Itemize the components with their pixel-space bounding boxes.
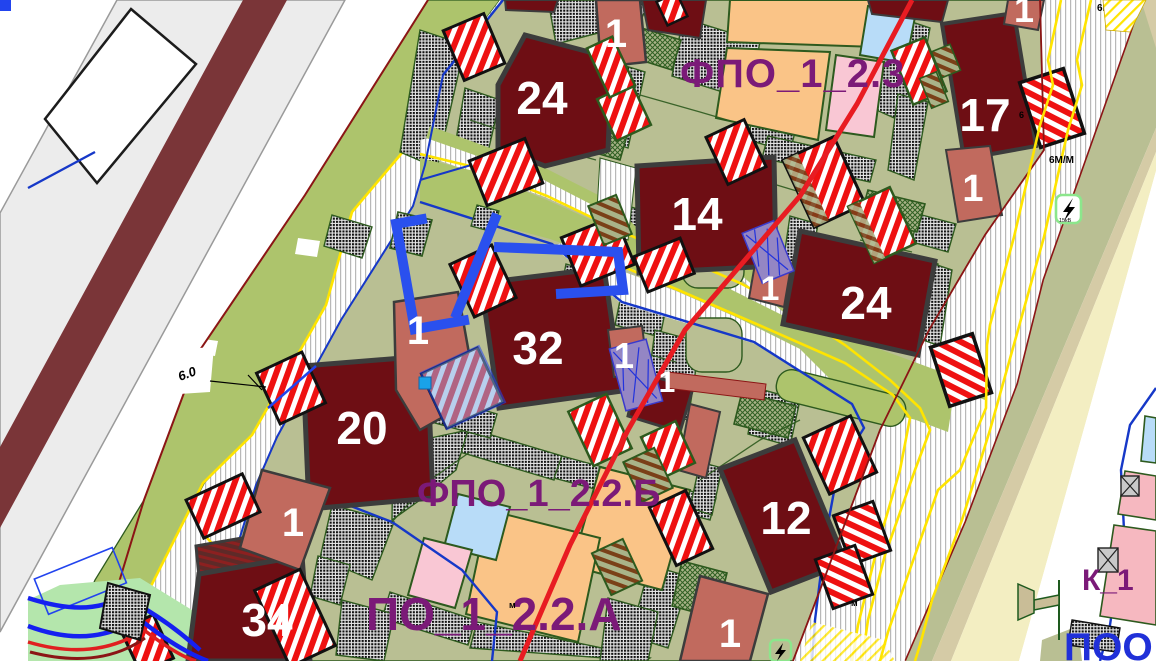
svg-text:ФПО_1_2.2.Б: ФПО_1_2.2.Б [417,473,660,515]
svg-text:1: 1 [1014,0,1034,30]
svg-text:12: 12 [760,492,811,544]
svg-text:15кВ: 15кВ [1059,218,1072,224]
svg-text:м: м [851,598,858,608]
svg-text:34: 34 [241,594,293,646]
svg-text:К_1: К_1 [1082,564,1134,597]
svg-text:14: 14 [671,188,723,240]
svg-text:1: 1 [719,612,741,656]
svg-text:6М/М: 6М/М [1049,155,1074,166]
svg-text:20: 20 [336,402,387,454]
svg-text:1: 1 [761,270,780,308]
svg-text:ФПО_1_2.3: ФПО_1_2.3 [680,52,905,96]
svg-text:6: 6 [1019,110,1024,120]
svg-text:17: 17 [959,89,1010,141]
svg-text:м: м [509,600,516,610]
svg-text:1: 1 [407,309,429,353]
svg-text:ПОО: ПОО [1064,626,1153,661]
svg-text:1: 1 [659,366,676,399]
svg-text:1: 1 [605,12,627,56]
svg-text:1: 1 [962,168,983,210]
svg-text:ПО_1_2.2.А: ПО_1_2.2.А [366,588,622,640]
svg-text:24: 24 [516,72,568,124]
svg-text:1: 1 [282,501,304,545]
svg-text:1: 1 [614,335,634,376]
svg-text:24: 24 [840,277,892,329]
svg-text:32: 32 [512,322,563,374]
